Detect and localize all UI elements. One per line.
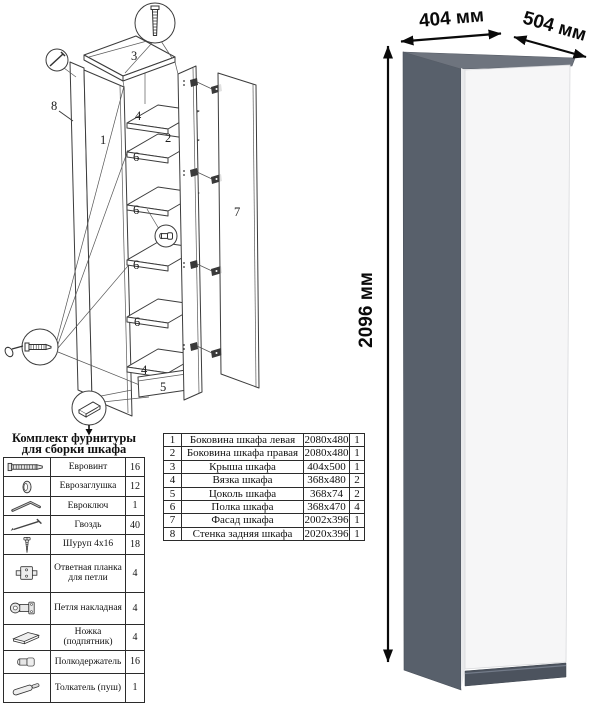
part-name: Боковина шкафа левая [182,434,304,447]
part-number-6: 6 [134,315,140,329]
hardware-item-qty: 18 [126,535,145,554]
part-number-8: 8 [51,99,57,113]
cabinet [403,52,575,690]
height-dimension: 2096 мм [356,46,388,662]
hardware-table-body: Евровинт16Еврозаглушка12Евроключ1Гвоздь4… [4,458,145,703]
hardware-item-name: Полкодержатель [51,650,126,673]
part-name: Крыша шкафа [182,460,304,473]
assembly-instruction-sheet: { "diagram": { "labels": { "p1": "1", "p… [0,0,601,700]
part-size: 2020x396 [304,527,350,540]
parts-row: 8Стенка задняя шкафа2020x3961 [164,527,365,540]
hinge-icon [4,592,51,624]
part-name: Стенка задняя шкафа [182,527,304,540]
hardware-row: Еврозаглушка12 [4,477,145,496]
depth-dimension: 504 мм [514,8,589,57]
part-qty: 1 [350,514,365,527]
part-size: 2080x480 [304,434,350,447]
part-qty: 1 [350,447,365,460]
part-number-4: 4 [141,363,148,377]
hardware-row: Полкодержатель16 [4,650,145,673]
exploded-diagram: 1 2 3 4 6 6 6 6 4 5 7 8 [0,0,340,446]
hardware-item-qty: 1 [126,673,145,702]
confirmat-screw-icon [4,458,51,477]
hardware-item-qty: 1 [126,496,145,515]
parts-row: 3Крыша шкафа404x5001 [164,460,365,473]
width-dimension: 404 мм [401,5,501,41]
part-size: 368x480 [304,474,350,487]
hardware-item-name: Ответная планка для петли [51,554,126,592]
shelf-pin-icon [160,233,173,239]
parts-table: 1Боковина шкафа левая2080x48012Боковина … [163,433,365,541]
part-number-6: 6 [133,203,139,217]
part-number: 1 [164,434,182,447]
hardware-item-name: Петля накладная [51,592,126,624]
part-size: 2002x396 [304,514,350,527]
part-number-7: 7 [234,205,240,219]
hardware-row: Ответная планка для петли4 [4,554,145,592]
cabinet-side-panel [403,52,461,690]
part-qty: 1 [350,527,365,540]
hardware-row: Петля накладная4 [4,592,145,624]
shelf-pin-icon [4,650,51,673]
parts-row: 2Боковина шкафа правая2080x4801 [164,447,365,460]
hardware-row: Гвоздь40 [4,515,145,534]
hardware-row: Евровинт16 [4,458,145,477]
hardware-item-name: Евроключ [51,496,126,515]
parts-row: 4Вязка шкафа368x4802 [164,474,365,487]
hardware-row: Евроключ1 [4,496,145,515]
part-qty: 4 [350,500,365,513]
push-latch-icon [4,673,51,702]
hardware-item-name: Ножка (подпятник) [51,624,126,650]
hardware-item-qty: 16 [126,458,145,477]
part-number-6: 6 [133,150,139,164]
hardware-item-name: Шуруп 4x16 [51,535,126,554]
foot-icon [4,624,51,650]
parts-row: 1Боковина шкафа левая2080x4801 [164,434,365,447]
hinge-plate-icon [4,554,51,592]
nail-icon [4,515,51,534]
cap-plug-icon [4,477,51,496]
part-number: 6 [164,500,182,513]
hardware-item-qty: 12 [126,477,145,496]
part-qty: 2 [350,474,365,487]
hardware-item-name: Еврозаглушка [51,477,126,496]
cabinet-front-door [465,65,570,669]
hardware-table: Евровинт16Еврозаглушка12Евроключ1Гвоздь4… [3,457,145,703]
assembled-render: 2096 мм 404 мм 504 мм [340,0,601,700]
height-dimension-label: 2096 мм [356,272,377,348]
hardware-item-name: Гвоздь [51,515,126,534]
part-number-6: 6 [133,258,139,272]
hardware-item-name: Евровинт [51,458,126,477]
screw-icon [4,535,51,554]
hex-key-icon [3,346,23,358]
hardware-item-qty: 16 [126,650,145,673]
part-number: 8 [164,527,182,540]
part-number-2: 2 [165,131,171,145]
width-dimension-label: 404 мм [418,5,485,32]
part-name: Полка шкафа [182,500,304,513]
part-name: Боковина шкафа правая [182,447,304,460]
part-number: 3 [164,460,182,473]
hardware-kit-title: Комплект фурнитуры для сборки шкафа [2,433,146,455]
hardware-item-qty: 40 [126,515,145,534]
hardware-kit-title-line2: для сборки шкафа [2,444,146,455]
hardware-item-name: Толкатель (пуш) [51,673,126,702]
part-number: 4 [164,474,182,487]
part-number-3: 3 [131,49,137,63]
cabinet-carcass-edge [461,68,465,690]
parts-row: 7Фасад шкафа2002x3961 [164,514,365,527]
part-name: Цоколь шкафа [182,487,304,500]
parts-row: 6Полка шкафа368x4704 [164,500,365,513]
part-qty: 2 [350,487,365,500]
part-size: 404x500 [304,460,350,473]
hardware-row: Шуруп 4x1618 [4,535,145,554]
facade-outline [218,73,259,388]
depth-dimension-label: 504 мм [520,8,588,46]
part-number: 5 [164,487,182,500]
part-number: 7 [164,514,182,527]
hex-key-icon [4,496,51,515]
part-size: 368x470 [304,500,350,513]
hardware-item-qty: 4 [126,624,145,650]
hardware-item-qty: 4 [126,554,145,592]
hardware-row: Ножка (подпятник)4 [4,624,145,650]
hardware-item-qty: 4 [126,592,145,624]
part-size: 2080x480 [304,447,350,460]
part-number-5: 5 [160,380,166,394]
hardware-row: Толкатель (пуш)1 [4,673,145,702]
part-qty: 1 [350,434,365,447]
part-name: Вязка шкафа [182,474,304,487]
part-name: Фасад шкафа [182,514,304,527]
left-side-panel-outline [84,70,132,416]
parts-table-body: 1Боковина шкафа левая2080x48012Боковина … [164,434,365,541]
right-side-panel-outline [175,62,202,400]
part-number-1: 1 [100,133,106,147]
part-number: 2 [164,447,182,460]
confirmat-key-callout [3,329,58,365]
part-number-4: 4 [135,109,142,123]
part-size: 368x74 [304,487,350,500]
part-qty: 1 [350,460,365,473]
parts-row: 5Цоколь шкафа368x742 [164,487,365,500]
